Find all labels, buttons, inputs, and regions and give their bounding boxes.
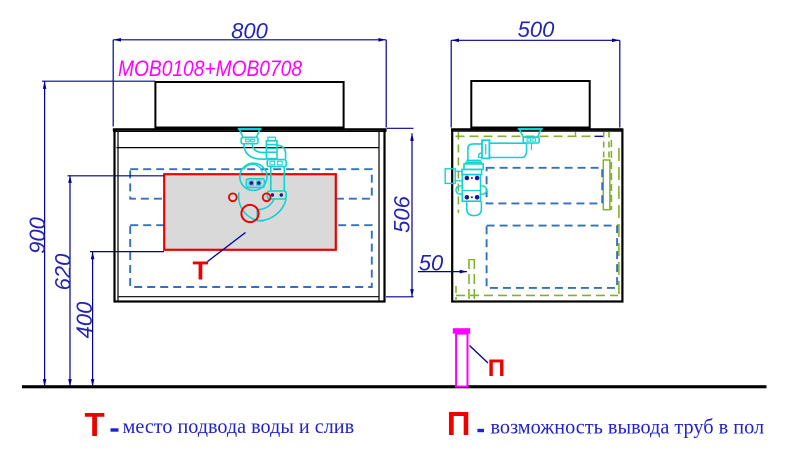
svg-text:506: 506 (390, 195, 415, 232)
svg-text:место подвода воды и слив: место подвода воды и слив (123, 414, 355, 438)
svg-text:800: 800 (231, 18, 268, 43)
svg-text:500: 500 (518, 17, 555, 42)
svg-text:возможность вывода труб в пол: возможность вывода труб в пол (491, 414, 765, 438)
svg-text:Т: Т (85, 406, 105, 443)
svg-text:50: 50 (419, 250, 444, 275)
svg-text:620: 620 (51, 253, 76, 290)
svg-text:MOB0108+MOB0708: MOB0108+MOB0708 (118, 56, 302, 81)
svg-text:Т: Т (193, 255, 209, 285)
svg-text:П: П (488, 355, 505, 382)
svg-text:400: 400 (72, 301, 97, 338)
svg-text:900: 900 (25, 216, 50, 253)
svg-text:П: П (447, 405, 471, 442)
